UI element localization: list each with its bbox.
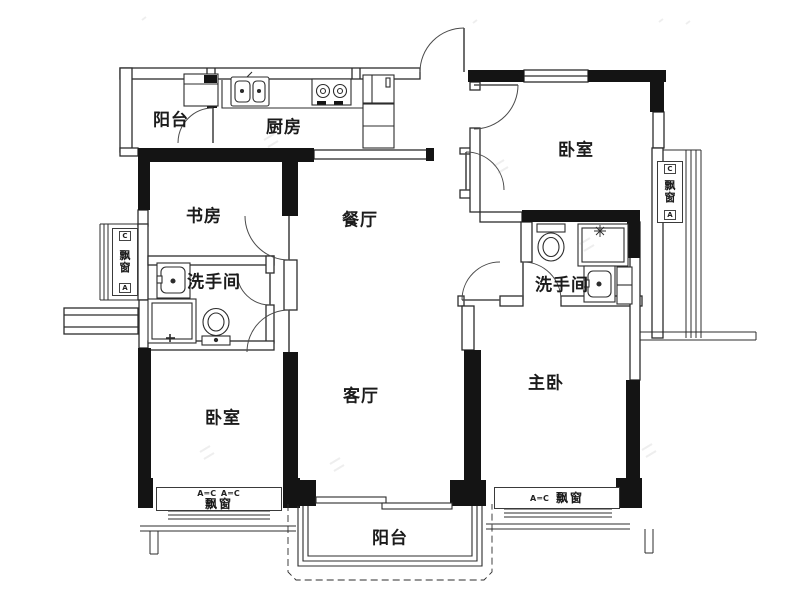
toilet-icon <box>202 309 230 346</box>
room-label-bathroom-left: 洗手间 <box>187 268 241 293</box>
room-label-bedroom-top-right: 卧室 <box>558 136 594 161</box>
floor-plan: 阳台 厨房 卧室 书房 餐厅 洗手间 洗手间 客厅 卧室 主卧 阳台 C 飘窗 … <box>0 0 800 600</box>
window-type-marker: A <box>664 210 675 220</box>
room-label-balcony-bottom: 阳台 <box>372 524 408 549</box>
room-label-kitchen: 厨房 <box>266 113 302 138</box>
shower-icon <box>578 224 628 266</box>
stove-icon <box>312 79 351 105</box>
kitchen-cabinet <box>363 104 394 148</box>
study-door <box>245 216 289 260</box>
master-bedroom-door <box>462 262 500 300</box>
window-type-markers: A═C <box>530 494 550 503</box>
bathroom-cabinet <box>617 267 632 304</box>
entry-door <box>420 28 464 72</box>
fridge-icon <box>363 75 394 103</box>
bay-window-label-left: C 飘窗 A <box>112 228 138 296</box>
bay-window-label-bottom-left: A═C A═C 飘窗 <box>156 487 282 511</box>
bay-window-label-right: C 飘窗 A <box>657 161 683 223</box>
room-label-bedroom-bottom-left: 卧室 <box>205 404 241 429</box>
bay-window-bottom-left <box>140 511 296 554</box>
room-label-balcony-top: 阳台 <box>153 106 189 131</box>
bedroom-top-right-door <box>474 85 518 129</box>
room-label-study: 书房 <box>186 202 222 227</box>
window-type-marker: C <box>664 164 675 174</box>
bathroom-left-door <box>237 273 270 305</box>
washing-machine-icon <box>184 74 218 106</box>
room-label-bathroom-right: 洗手间 <box>535 271 589 296</box>
bay-window-label-bottom-right: A═C 飘窗 <box>494 487 620 509</box>
window-type-marker: A <box>119 283 130 293</box>
sliding-door <box>316 497 452 509</box>
window-type-marker: C <box>119 231 130 241</box>
toilet-icon <box>537 224 565 261</box>
room-label-living: 客厅 <box>343 382 379 407</box>
vanity-sink-icon <box>157 263 190 298</box>
floor-plan-drawing <box>0 0 800 600</box>
room-label-master-bedroom: 主卧 <box>528 369 564 394</box>
kitchen-sink-icon <box>231 72 269 106</box>
shower-icon <box>148 299 196 343</box>
bay-window-bottom-right <box>486 509 653 553</box>
room-label-dining: 餐厅 <box>342 206 378 231</box>
